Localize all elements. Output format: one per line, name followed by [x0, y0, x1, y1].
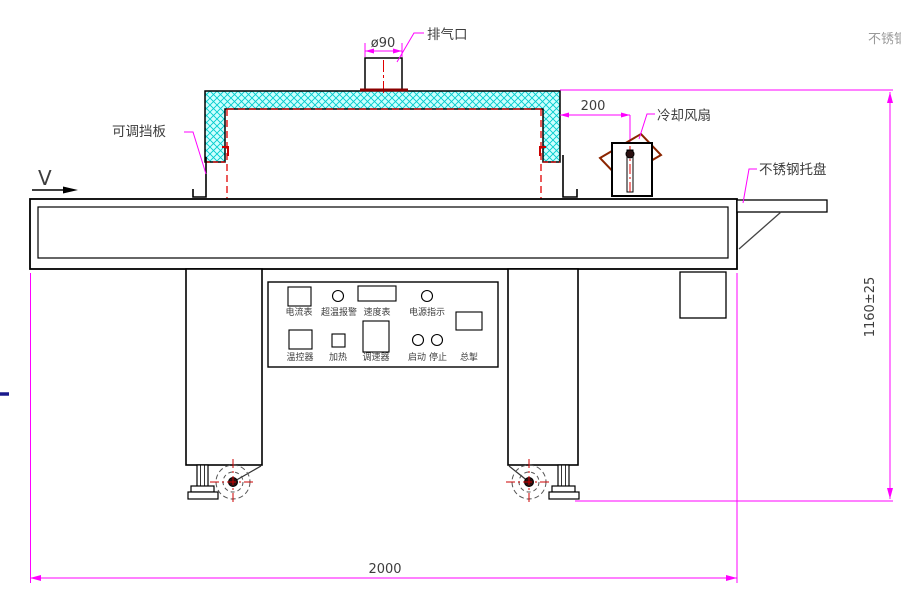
arrow-up-icon	[887, 92, 893, 103]
cad-drawing-tunnel-oven: ø90 排气口 200 冷却风扇 可调挡板 V	[0, 0, 901, 601]
tray-support	[739, 212, 781, 249]
right-baffle-bracket	[563, 155, 577, 197]
adjustable-baffle-callout: 可调挡板	[112, 124, 206, 174]
dim-200-text: 200	[581, 99, 606, 114]
tunnel-furnace	[205, 91, 560, 199]
stainless-tray-label: 不锈钢托盘	[759, 161, 827, 178]
start-label: 启动	[408, 351, 426, 363]
left-leg	[186, 269, 262, 465]
heating-label: 加热	[329, 351, 347, 363]
cooling-fan-label: 冷却风扇	[657, 108, 711, 124]
arrow-left-icon	[30, 575, 41, 581]
stainless-tray	[737, 200, 827, 249]
dim-2000-text: 2000	[368, 562, 401, 577]
temp-controller-display	[289, 330, 312, 349]
control-panel: 电流表 超温报警 速度表 电源指示 温控器 加热 调速器 启动 停止 总掣	[268, 282, 498, 367]
conveyor-table	[30, 199, 737, 269]
ammeter-display	[288, 287, 311, 306]
right-leg	[508, 269, 578, 465]
power-indicator-lamp	[422, 291, 433, 302]
dim-200: 200	[560, 99, 630, 143]
power-indicator-label: 电源指示	[409, 306, 445, 318]
temp-controller-label: 温控器	[286, 351, 313, 363]
arrow-right-icon	[726, 575, 737, 581]
speed-meter-label: 速度表	[363, 306, 390, 318]
cooling-fan	[600, 134, 661, 196]
arrow-left-icon	[560, 113, 569, 118]
stop-button	[432, 335, 443, 346]
arrow-down-icon	[887, 488, 893, 499]
speed-meter-display	[358, 286, 396, 301]
stainless-tray-callout: 不锈钢托盘	[743, 161, 827, 203]
stop-label: 停止	[429, 351, 447, 363]
left-baffle-bracket	[193, 157, 206, 197]
heating-switch	[332, 334, 345, 347]
adjustable-baffle-label: 可调挡板	[112, 124, 166, 140]
cooling-fan-callout: 冷却风扇	[639, 108, 711, 139]
overtemp-alarm-label: 超温报警	[321, 306, 357, 318]
speed-regulator-knob	[363, 321, 389, 352]
exhaust-port-callout: 排气口	[397, 27, 468, 62]
overtemp-alarm-lamp	[333, 291, 344, 302]
speed-regulator-label: 调速器	[362, 352, 389, 363]
fan-hub	[626, 150, 634, 158]
dim-height-text: 1160±25	[863, 277, 878, 338]
arrow-right-icon	[621, 113, 630, 118]
conveyor-belt	[38, 207, 728, 258]
start-button	[413, 335, 424, 346]
dim-diameter-text: ø90	[371, 36, 396, 51]
electrical-box	[680, 272, 726, 318]
direction-arrow-icon	[63, 187, 78, 194]
exhaust-port-label: 排气口	[427, 27, 468, 43]
leader-line	[184, 132, 206, 174]
exhaust-chimney	[360, 58, 408, 95]
belt-direction: V	[32, 166, 78, 194]
main-switch	[456, 312, 482, 330]
dim-diameter-90: ø90	[365, 36, 402, 57]
right-leveling-foot	[549, 465, 579, 499]
velocity-label: V	[38, 166, 52, 190]
ammeter-label: 电流表	[285, 306, 312, 318]
main-switch-label: 总掣	[460, 351, 478, 363]
right-caster	[506, 459, 552, 505]
corner-note-label: 不锈钢	[868, 32, 901, 47]
leader-line	[743, 169, 757, 203]
drawing-svg: ø90 排气口 200 冷却风扇 可调挡板 V	[0, 0, 901, 601]
